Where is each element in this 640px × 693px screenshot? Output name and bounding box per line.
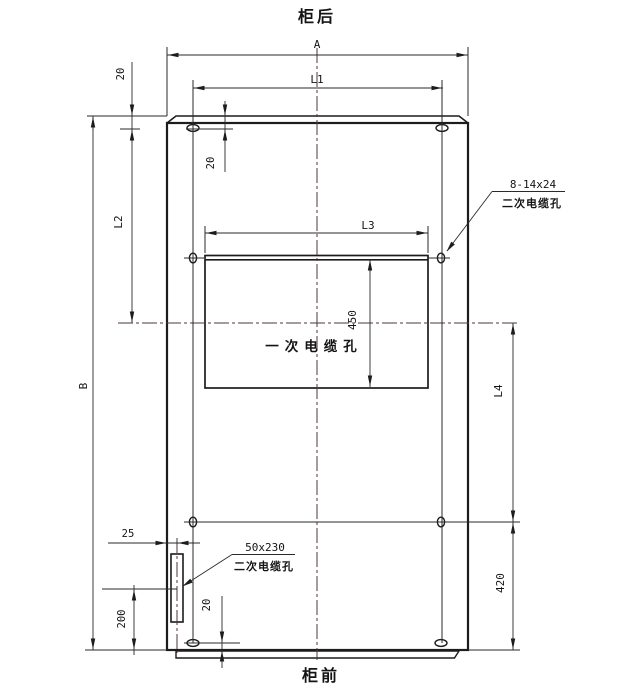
dim-A: A [314, 38, 321, 51]
mounting-hole [435, 640, 447, 647]
dimension-lines [93, 55, 513, 668]
label-cabinet-rear: 柜后 [298, 7, 336, 26]
dim-420: 420 [494, 573, 507, 593]
cabinet-base-drawing: 柜后 柜前 A L1 L3 B L2 L4 450 420 20 20 20 2… [0, 0, 640, 693]
dim-L3: L3 [361, 219, 374, 232]
dim-L2: L2 [112, 215, 125, 228]
callout-secondary-top-label: 二次电缆孔 [502, 196, 562, 210]
dim-450: 450 [346, 310, 359, 330]
dim-20-bottom: 20 [201, 599, 213, 612]
dim-L1: L1 [310, 73, 323, 86]
callout-secondary-bottom-label: 二次电缆孔 [234, 559, 294, 573]
leader-secondary-top [447, 192, 492, 252]
dim-L4: L4 [492, 384, 505, 398]
dim-20-top-inner: 20 [205, 157, 217, 170]
dim-200: 200 [116, 610, 128, 629]
dim-25: 25 [122, 528, 135, 540]
leader-secondary-bottom [183, 555, 232, 587]
label-primary-cable-hole: 一次电缆孔 [265, 338, 363, 355]
callout-secondary-top-size: 8-14x24 [510, 178, 557, 191]
drawing-canvas: 柜后 柜前 A L1 L3 B L2 L4 450 420 20 20 20 2… [0, 0, 640, 693]
callout-secondary-bottom-size: 50x230 [245, 541, 285, 554]
dim-20-top-left: 20 [115, 68, 127, 81]
dim-B: B [77, 382, 90, 389]
label-cabinet-front: 柜前 [302, 666, 340, 685]
